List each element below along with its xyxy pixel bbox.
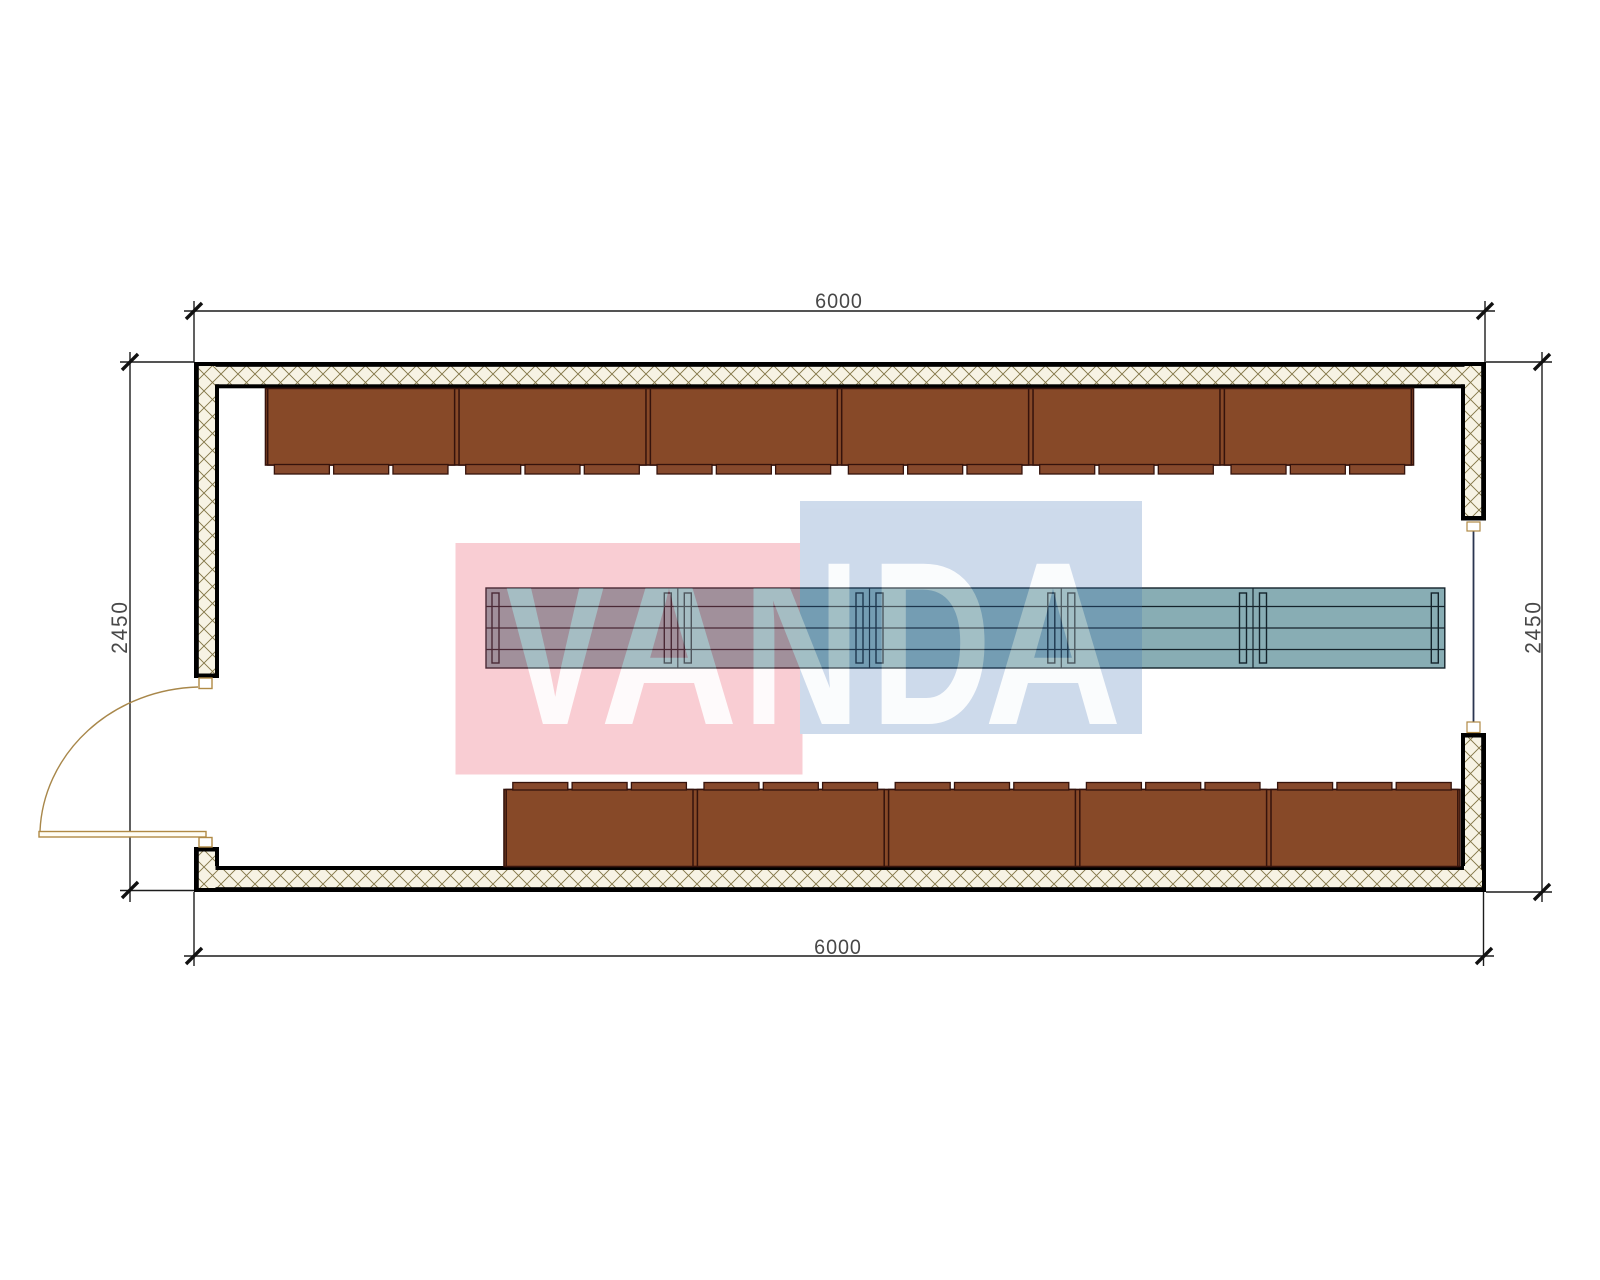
svg-text:2450: 2450	[1520, 600, 1546, 653]
svg-text:2450: 2450	[106, 600, 132, 653]
svg-text:6000: 6000	[815, 289, 863, 313]
svg-text:6000: 6000	[814, 935, 862, 959]
svg-text:A: A	[984, 514, 1122, 774]
svg-text:D: D	[870, 514, 991, 775]
